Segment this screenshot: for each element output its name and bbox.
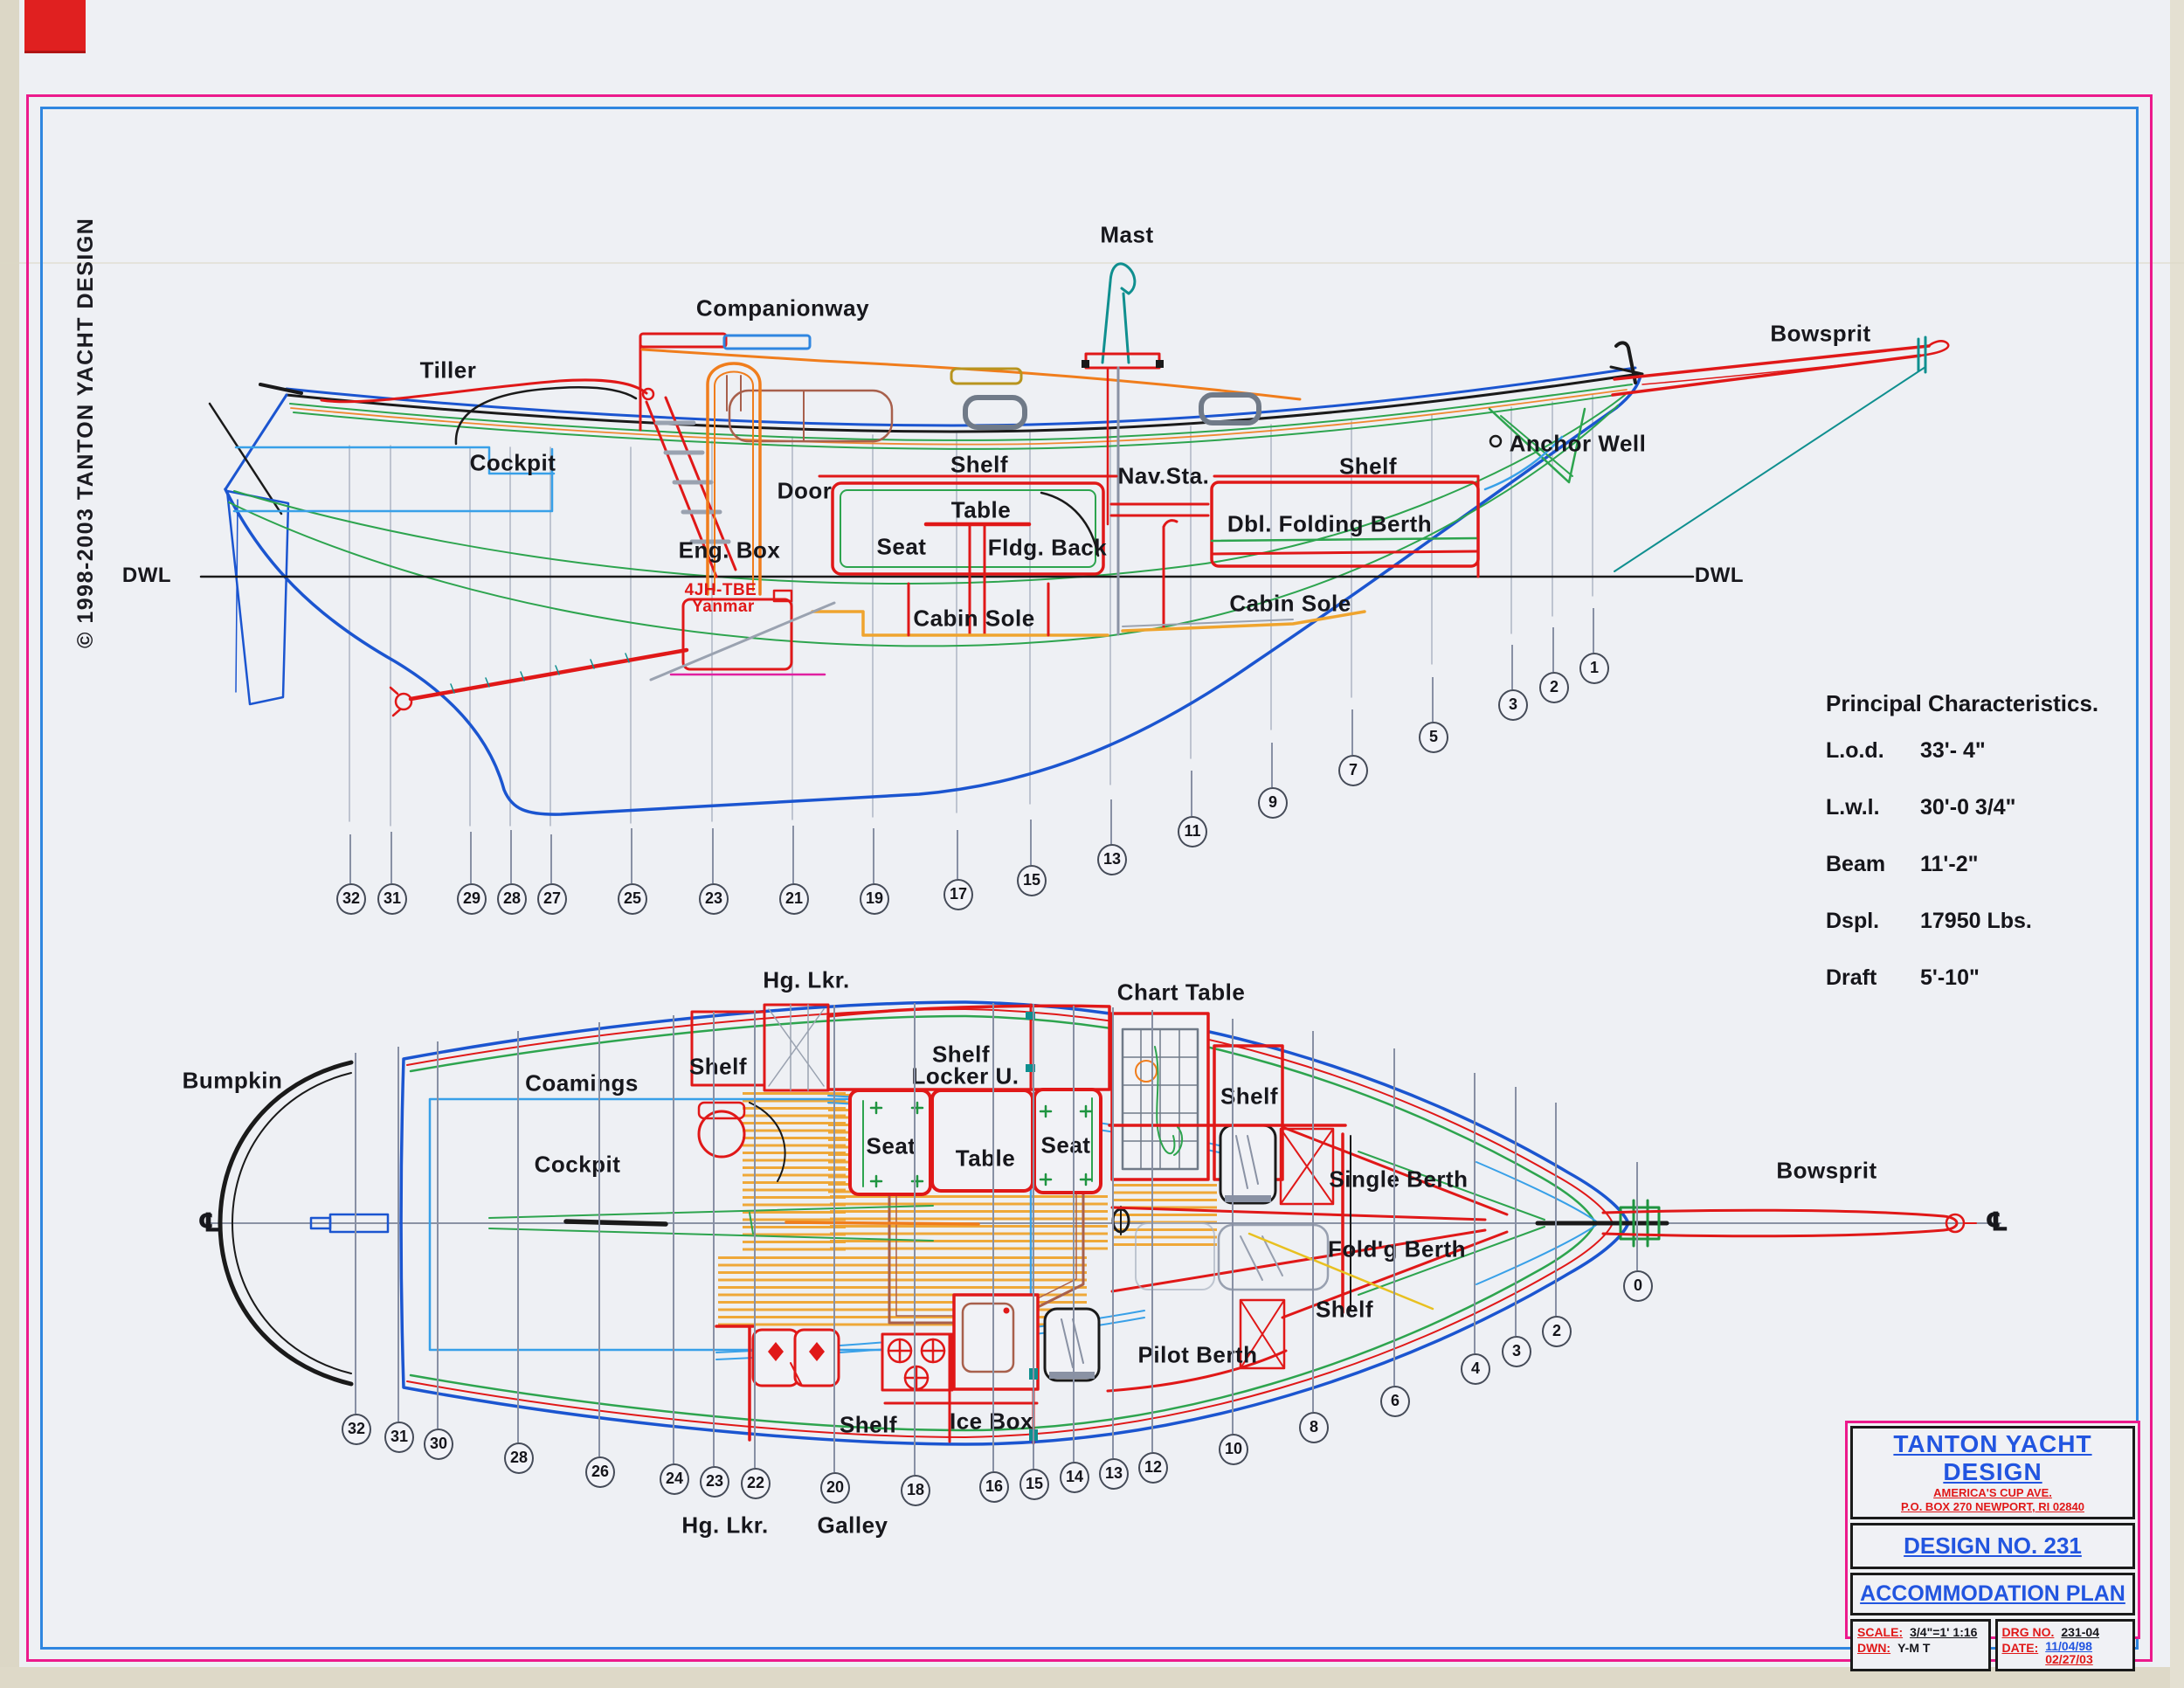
station-leader-line — [1033, 1004, 1034, 1469]
drawing-label: Hg. Lkr. — [763, 967, 849, 994]
drawing-label: Coamings — [525, 1070, 639, 1097]
station-marker: 24 — [660, 1463, 689, 1495]
station-leader-line — [397, 1047, 399, 1422]
station-leader-line — [1393, 1048, 1395, 1386]
drawing-label: Seat — [1041, 1132, 1091, 1159]
drawing-label: Shelf — [840, 1412, 897, 1439]
station-leader-line — [1474, 1073, 1476, 1353]
station-leader-line — [1151, 1010, 1153, 1452]
station-leader-line — [833, 1005, 835, 1472]
drawing-label: Ice Box — [950, 1408, 1033, 1435]
drawing-label: Hg. Lkr. — [681, 1512, 768, 1539]
station-marker: 10 — [1219, 1434, 1248, 1465]
station-leader-line — [1636, 1162, 1638, 1270]
station-leader-line — [673, 1015, 674, 1463]
drawing-label: ℄ — [1985, 1207, 2008, 1238]
station-marker: 31 — [384, 1422, 414, 1453]
station-leader-line — [992, 1003, 994, 1471]
blueprint-sheet: © 1998-2003 TANTON YACHT DESIGN Principa… — [0, 0, 2184, 1688]
drawing-label: Single Berth — [1329, 1166, 1468, 1193]
drawing-label: Seat — [867, 1133, 916, 1160]
drawing-label: Bumpkin — [183, 1068, 283, 1095]
station-leader-line — [914, 1003, 916, 1475]
station-marker: 16 — [979, 1471, 1009, 1503]
station-marker: 3 — [1502, 1336, 1531, 1367]
station-marker: 13 — [1099, 1458, 1129, 1490]
drawing-label: Chart Table — [1117, 979, 1246, 1007]
station-leader-line — [1232, 1019, 1234, 1434]
drawing-label: Shelf — [1220, 1083, 1278, 1110]
station-marker: 30 — [424, 1429, 453, 1460]
station-marker: 26 — [585, 1456, 615, 1488]
station-marker: 14 — [1060, 1462, 1089, 1493]
station-marker: 28 — [504, 1442, 534, 1474]
station-leader-line — [1112, 1007, 1114, 1458]
station-marker: 18 — [901, 1475, 930, 1506]
drawing-label: Shelf — [1316, 1297, 1373, 1324]
station-leader-line — [437, 1041, 439, 1429]
station-marker: 22 — [741, 1468, 771, 1499]
station-leader-line — [1555, 1103, 1557, 1316]
station-marker: 4 — [1461, 1353, 1490, 1385]
station-marker: 23 — [700, 1466, 729, 1498]
drawing-label: Bowsprit — [1776, 1158, 1876, 1185]
station-marker: 12 — [1138, 1452, 1168, 1484]
station-leader-line — [713, 1012, 715, 1466]
plan-view-layer: Hg. Lkr.Chart TableBumpkinCoamingsShelfS… — [0, 0, 2184, 1688]
drawing-label: Cockpit — [535, 1152, 621, 1179]
station-marker: 15 — [1019, 1469, 1049, 1500]
station-marker: 6 — [1380, 1386, 1410, 1417]
station-marker: 8 — [1299, 1412, 1329, 1443]
drawing-label: Locker U. — [912, 1063, 1019, 1090]
station-marker: 0 — [1623, 1270, 1653, 1302]
drawing-label: Shelf — [689, 1054, 747, 1081]
drawing-label: Fold'g Berth — [1328, 1236, 1466, 1263]
drawing-label: Pilot Berth — [1138, 1342, 1258, 1369]
drawing-label: ℄ — [197, 1208, 221, 1239]
station-leader-line — [1515, 1087, 1517, 1336]
station-leader-line — [355, 1053, 356, 1414]
station-leader-line — [598, 1022, 600, 1456]
station-marker: 2 — [1542, 1316, 1572, 1347]
drawing-label: Table — [956, 1145, 1015, 1173]
station-leader-line — [1312, 1031, 1314, 1412]
station-leader-line — [517, 1031, 519, 1442]
station-marker: 20 — [820, 1472, 850, 1504]
station-marker: 32 — [342, 1414, 371, 1445]
station-leader-line — [1073, 1006, 1075, 1462]
drawing-label: Galley — [817, 1512, 888, 1539]
station-leader-line — [754, 1010, 756, 1468]
